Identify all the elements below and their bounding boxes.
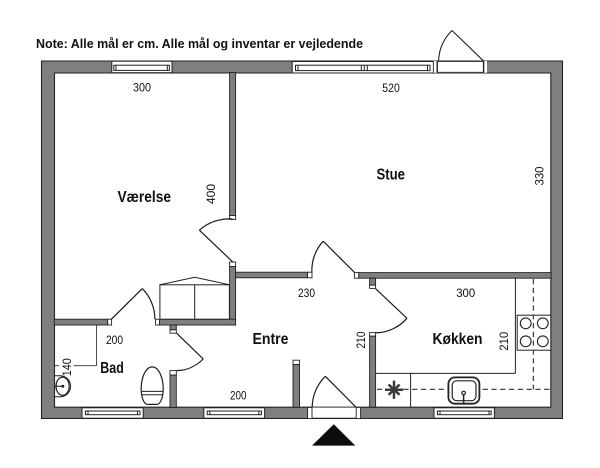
svg-text:Køkken: Køkken xyxy=(433,331,483,348)
svg-text:520: 520 xyxy=(382,81,400,95)
svg-text:Værelse: Værelse xyxy=(118,189,172,206)
svg-text:200: 200 xyxy=(106,333,123,347)
svg-text:300: 300 xyxy=(133,80,151,94)
svg-text:Stue: Stue xyxy=(377,167,406,184)
svg-text:Bad: Bad xyxy=(100,360,124,377)
svg-text:300: 300 xyxy=(456,286,475,300)
svg-text:210: 210 xyxy=(497,331,511,350)
svg-text:140: 140 xyxy=(60,358,74,376)
svg-text:230: 230 xyxy=(298,286,315,300)
svg-text:210: 210 xyxy=(354,331,368,348)
svg-text:Note: Alle mål er cm. Alle mål: Note: Alle mål er cm. Alle mål og invent… xyxy=(36,36,363,51)
svg-text:400: 400 xyxy=(204,184,218,204)
svg-text:Entre: Entre xyxy=(253,331,289,348)
svg-text:330: 330 xyxy=(533,166,547,185)
svg-text:200: 200 xyxy=(230,389,247,403)
